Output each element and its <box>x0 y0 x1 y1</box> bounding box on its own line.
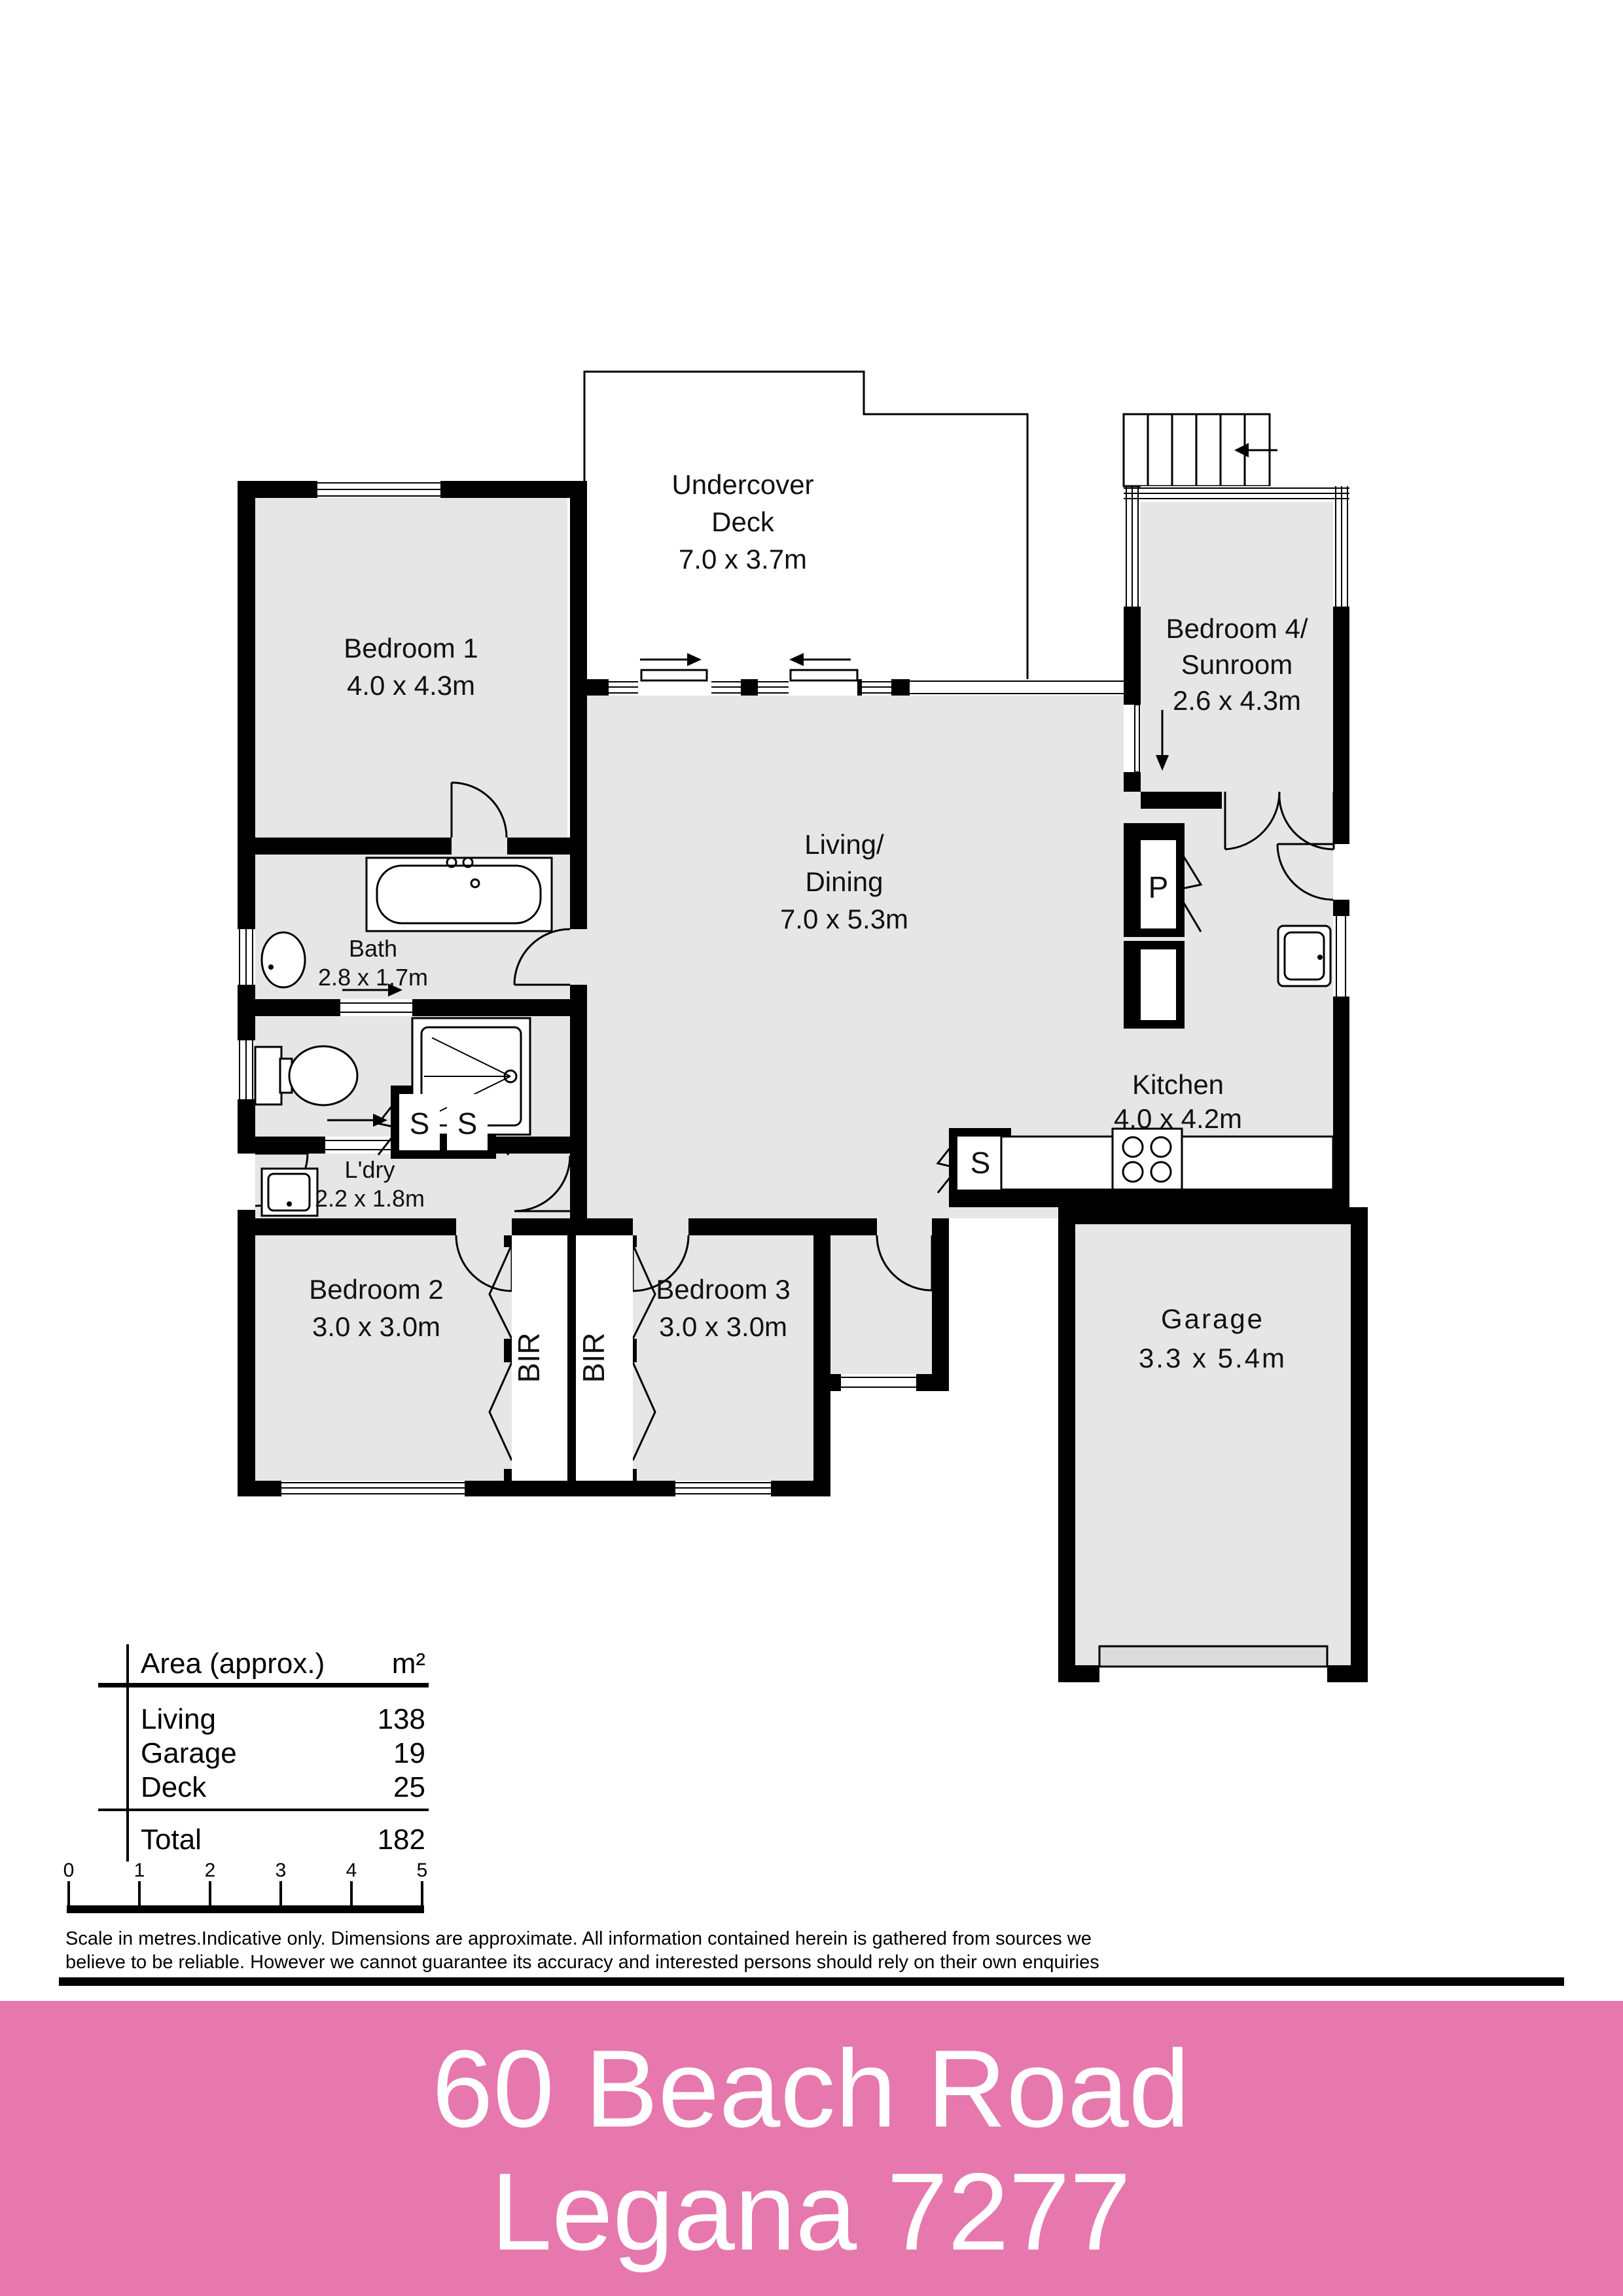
disclaimer-line1: Scale in metres.Indicative only. Dimensi… <box>65 1928 1092 1949</box>
scale-tick-4: 4 <box>346 1860 357 1881</box>
garage-door <box>1099 1646 1327 1667</box>
footer-divider <box>59 1977 1564 1986</box>
bir-label-1: BIR <box>512 1333 546 1383</box>
bedroom4-floor <box>1141 502 1333 792</box>
deck-label-line2: Deck <box>711 506 775 537</box>
area-table: Area (approx.) m² Living 138 Garage 19 D… <box>98 1644 429 1862</box>
area-table-unit: m² <box>392 1648 425 1680</box>
kitchen-dims: 4.0 x 4.2m <box>1114 1103 1242 1134</box>
bedroom3-floor <box>633 1235 813 1481</box>
pantry-label: P <box>1149 870 1169 904</box>
storage-label-1: S <box>410 1106 430 1140</box>
bedroom3-dims: 3.0 x 3.0m <box>659 1311 787 1342</box>
bedroom1-label: Bedroom 1 <box>344 633 478 663</box>
scale-tick-5: 5 <box>417 1860 428 1881</box>
laundry-dims: 2.2 x 1.8m <box>315 1185 425 1212</box>
living-label: Living/ <box>804 829 884 860</box>
scale-tick-1: 1 <box>134 1860 145 1881</box>
bedroom2-dims: 3.0 x 3.0m <box>312 1311 440 1342</box>
address-line1: 60 Beach Road <box>432 2027 1191 2150</box>
bedroom3-label: Bedroom 3 <box>656 1274 790 1305</box>
storage-label-3: S <box>971 1146 991 1180</box>
stairs <box>1124 414 1277 486</box>
disclaimer-line2: believe to be reliable. However we canno… <box>65 1952 1099 1973</box>
area-table-header: Area (approx.) <box>141 1648 325 1680</box>
linen-cupboard <box>1141 949 1176 1020</box>
kitchen-sink <box>1278 926 1330 986</box>
bedroom1-floor <box>255 498 567 838</box>
bedroom1-dims: 4.0 x 4.3m <box>347 670 475 701</box>
storage-label-2: S <box>457 1106 478 1140</box>
area-row-living-label: Living <box>141 1703 216 1735</box>
deck-label-line1: Undercover <box>671 469 813 500</box>
laundry-tub <box>262 1169 317 1216</box>
address-line2: Legana 7277 <box>491 2150 1132 2273</box>
garage-label: Garage <box>1161 1303 1264 1334</box>
toilet <box>255 1046 357 1105</box>
scale-bar: 0 1 2 3 4 5 <box>63 1860 428 1913</box>
scale-tick-2: 2 <box>205 1860 216 1881</box>
bir-label-2: BIR <box>577 1333 611 1383</box>
floorplan-page: Undercover Deck 7.0 x 3.7m <box>0 0 1623 2296</box>
vanity-basin <box>262 932 305 987</box>
bedroom4-label2: Sunroom <box>1181 649 1293 680</box>
bedroom2-floor <box>255 1235 512 1481</box>
garage-floor <box>1075 1224 1351 1665</box>
kitchen-label: Kitchen <box>1132 1069 1224 1100</box>
bath-dims: 2.8 x 1.7m <box>318 964 428 991</box>
bathtub <box>366 858 552 931</box>
area-total-label: Total <box>141 1824 202 1856</box>
scale-tick-3: 3 <box>276 1860 287 1881</box>
scale-tick-0: 0 <box>63 1860 75 1881</box>
area-row-deck-label: Deck <box>141 1771 207 1803</box>
bath-label: Bath <box>349 935 397 962</box>
cooktop <box>1113 1129 1182 1190</box>
disclaimer: Scale in metres.Indicative only. Dimensi… <box>65 1928 1099 1973</box>
bedroom4-label: Bedroom 4/ <box>1166 613 1308 644</box>
bedroom4-dims: 2.6 x 4.3m <box>1173 685 1301 716</box>
area-total-value: 182 <box>378 1824 425 1856</box>
bedroom2-label: Bedroom 2 <box>309 1274 443 1305</box>
address-footer: 60 Beach Road Legana 7277 <box>0 2001 1623 2296</box>
sliding-door-panel <box>641 670 707 680</box>
area-row-garage-value: 19 <box>393 1737 425 1769</box>
garage-dims: 3.3 x 5.4m <box>1139 1343 1287 1373</box>
undercover-deck: Undercover Deck 7.0 x 3.7m <box>584 372 1027 679</box>
living-label2: Dining <box>805 866 883 897</box>
area-row-deck-value: 25 <box>393 1771 425 1803</box>
area-row-garage-label: Garage <box>141 1737 237 1769</box>
area-row-living-value: 138 <box>378 1703 425 1735</box>
sliding-door-panel <box>791 670 857 680</box>
deck-dims: 7.0 x 3.7m <box>679 544 807 574</box>
living-dims: 7.0 x 5.3m <box>780 904 908 934</box>
laundry-label: L'dry <box>345 1156 395 1183</box>
